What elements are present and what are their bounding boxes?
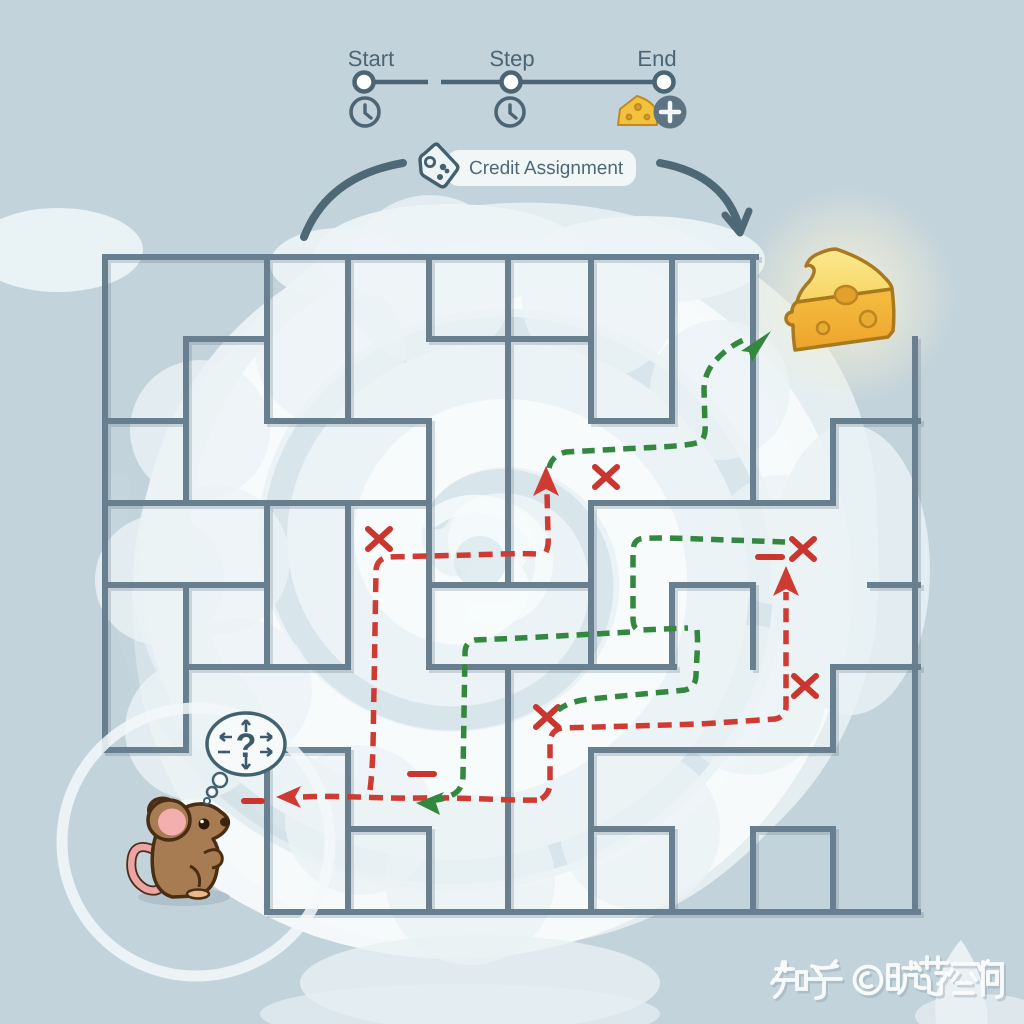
svg-text:Credit Assignment: Credit Assignment <box>469 158 624 179</box>
svg-text:End: End <box>637 46 676 71</box>
svg-text:Step: Step <box>489 46 534 71</box>
svg-text:Start: Start <box>348 46 394 71</box>
